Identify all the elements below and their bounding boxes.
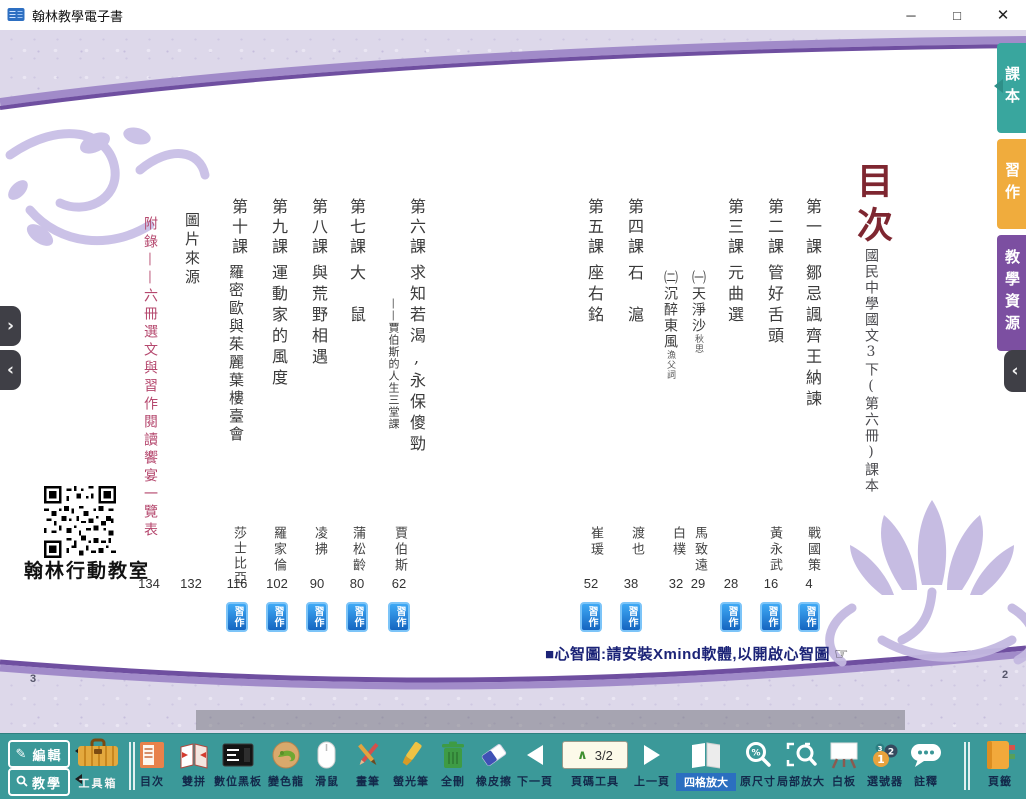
left-page-number: 3 <box>30 673 36 685</box>
maximize-button[interactable]: □ <box>934 0 980 30</box>
qr-caption: 翰林行動教室 <box>12 556 162 583</box>
tab-textbook[interactable]: 課本 <box>997 43 1026 133</box>
page-counter-value: 3/2 <box>595 748 613 763</box>
lesson-page-number: 132 <box>176 576 206 591</box>
lesson-title: 大 鼠 <box>344 264 368 327</box>
lesson-label: 第十課 <box>226 198 250 258</box>
tabbed-notebook-icon <box>974 738 1026 772</box>
pencil-icon: ✎ <box>16 746 29 762</box>
tab-workbook[interactable]: 習作 <box>997 139 1026 229</box>
lesson-subitem: ㈠天淨沙秋思 <box>688 270 708 354</box>
lesson-author: 賈伯斯 <box>390 526 409 574</box>
lesson-label: 第七課 <box>344 198 368 258</box>
toc-title: 目次 <box>846 162 898 250</box>
workbook-badge[interactable]: 習作 <box>346 602 368 632</box>
tool-annotation[interactable]: 註釋 <box>898 738 954 789</box>
tool-quad-zoom[interactable]: 四格放大 <box>676 738 736 791</box>
workbook-badge[interactable]: 習作 <box>580 602 602 632</box>
page-counter-box: ∧3/2 <box>562 741 628 769</box>
lesson-title: 運動家的風度 <box>266 264 290 390</box>
lesson-page-number: 102 <box>262 576 292 591</box>
book-subtitle: 國民中學國文3下(第六冊)課本 <box>861 248 881 494</box>
lesson-page-number: 28 <box>716 576 746 591</box>
lesson-title: 管好舌頭 <box>762 264 786 348</box>
magnifier-icon <box>16 775 28 790</box>
lesson-page-number: 80 <box>342 576 372 591</box>
tool-prev-page[interactable]: 上一頁 <box>624 738 680 789</box>
toolbar: ✎編輯 教學 工具箱 目次 雙拼 數位黑板 變色龍 <box>0 733 1026 799</box>
lesson-label: 第四課 <box>622 198 646 258</box>
minimize-button[interactable]: ─ <box>888 0 934 30</box>
lesson-label: 第八課 <box>306 198 330 258</box>
teach-mode-button[interactable]: 教學 <box>8 768 70 796</box>
lesson-title: 石 滬 <box>622 264 646 327</box>
svg-text:1: 1 <box>877 753 885 766</box>
toolbox-button[interactable]: 工具箱 <box>72 736 124 791</box>
workbook-badge[interactable]: 習作 <box>306 602 328 632</box>
tool-page-number[interactable]: ∧3/2 頁碼工具 <box>559 738 631 789</box>
title-bar: 翰林教學電子書 ─ □ ✕ <box>0 0 1026 31</box>
arrow-left-icon <box>507 738 563 772</box>
edit-mode-button[interactable]: ✎編輯 <box>8 740 70 768</box>
arrow-right-icon <box>624 738 680 772</box>
toolbox-icon <box>75 757 121 774</box>
lesson-page-number: 32 <box>661 576 691 591</box>
workbook-badge[interactable]: 習作 <box>798 602 820 632</box>
collapse-tabs-button[interactable]: ‹ <box>1004 350 1026 392</box>
window-title: 翰林教學電子書 <box>32 6 123 25</box>
lesson-subtitle: ——賈伯斯的人生三堂課 <box>385 298 401 430</box>
workbook-badge[interactable]: 習作 <box>760 602 782 632</box>
tool-next-page[interactable]: 下一頁 <box>507 738 563 789</box>
svg-text:%: % <box>751 749 760 759</box>
lesson-label: 第五課 <box>582 198 606 258</box>
workbook-badge[interactable]: 習作 <box>226 602 248 632</box>
app-icon <box>7 7 25 23</box>
lesson-page-number: 4 <box>794 576 824 591</box>
lesson-page-number: 116 <box>222 576 252 591</box>
toolbar-divider <box>964 742 966 790</box>
qr-code <box>44 486 116 558</box>
lesson-page-number: 90 <box>302 576 332 591</box>
appendix-entry: 附錄——六冊選文與習作閱讀饗宴一覽表 <box>140 216 160 540</box>
lesson-title: 求知若渴,永保傻勁 <box>404 264 428 456</box>
tool-page-tabs[interactable]: 頁籤 <box>974 738 1026 789</box>
lesson-author: 黃永武 <box>765 526 784 574</box>
bottom-overlay-bar <box>196 710 905 730</box>
lesson-label: 第二課 <box>762 198 786 258</box>
hand-pointer-icon: ☞ <box>834 646 849 663</box>
picture-credits: 圖片來源 <box>182 212 203 288</box>
lesson-subitem: ㈡沉醉東風漁父詞 <box>660 270 680 380</box>
lesson-page-number: 62 <box>384 576 414 591</box>
lesson-title: 與荒野相遇 <box>306 264 330 369</box>
lesson-label: 第三課 <box>722 198 746 258</box>
mindmap-note[interactable]: ■心智圖:請安裝Xmind軟體,以開啟心智圖☞ <box>545 643 849 664</box>
lesson-author: 羅家倫 <box>269 526 288 574</box>
workbook-badge[interactable]: 習作 <box>388 602 410 632</box>
lesson-page-number: 16 <box>756 576 786 591</box>
lesson-title: 座右銘 <box>582 264 606 327</box>
ebook-canvas: 目次 國民中學國文3下(第六冊)課本 第一課 鄒忌諷齊王納諫 戰國策 4 習作 … <box>0 30 1026 733</box>
workbook-badge[interactable]: 習作 <box>720 602 742 632</box>
lesson-author: 凌拂 <box>310 526 329 558</box>
workbook-badge[interactable]: 習作 <box>620 602 642 632</box>
open-book-icon <box>676 738 736 772</box>
lesson-author: 渡也 <box>627 526 646 558</box>
lesson-author: 戰國策 <box>803 526 822 574</box>
lesson-title: 羅密歐與茱麗葉樓臺會 <box>226 264 247 444</box>
right-page-number: 2 <box>1002 669 1008 681</box>
lesson-title: 鄒忌諷齊王納諫 <box>800 264 824 411</box>
lesson-label: 第六課 <box>404 198 428 258</box>
speech-bubble-icon <box>898 738 954 772</box>
expand-panel-button[interactable]: › <box>0 306 21 346</box>
caret-up-icon: ∧ <box>577 747 588 763</box>
lesson-page-number: 38 <box>616 576 646 591</box>
collapse-panel-button[interactable]: ‹ <box>0 350 21 390</box>
lesson-page-number: 52 <box>576 576 606 591</box>
lesson-author: 蒲松齡 <box>348 526 367 574</box>
svg-text:2: 2 <box>888 748 894 758</box>
lesson-author: 白樸 <box>668 526 687 558</box>
lesson-title: 元曲選 <box>722 264 746 327</box>
lesson-author: 馬致遠 <box>690 526 709 574</box>
workbook-badge[interactable]: 習作 <box>266 602 288 632</box>
app-window: 翰林教學電子書 ─ □ ✕ <box>0 0 1026 798</box>
lesson-label: 第一課 <box>800 198 824 258</box>
tab-teaching-resources[interactable]: 教學資源 <box>997 235 1026 351</box>
lesson-author: 崔瑗 <box>586 526 605 558</box>
lesson-label: 第九課 <box>266 198 290 258</box>
close-button[interactable]: ✕ <box>980 0 1026 30</box>
